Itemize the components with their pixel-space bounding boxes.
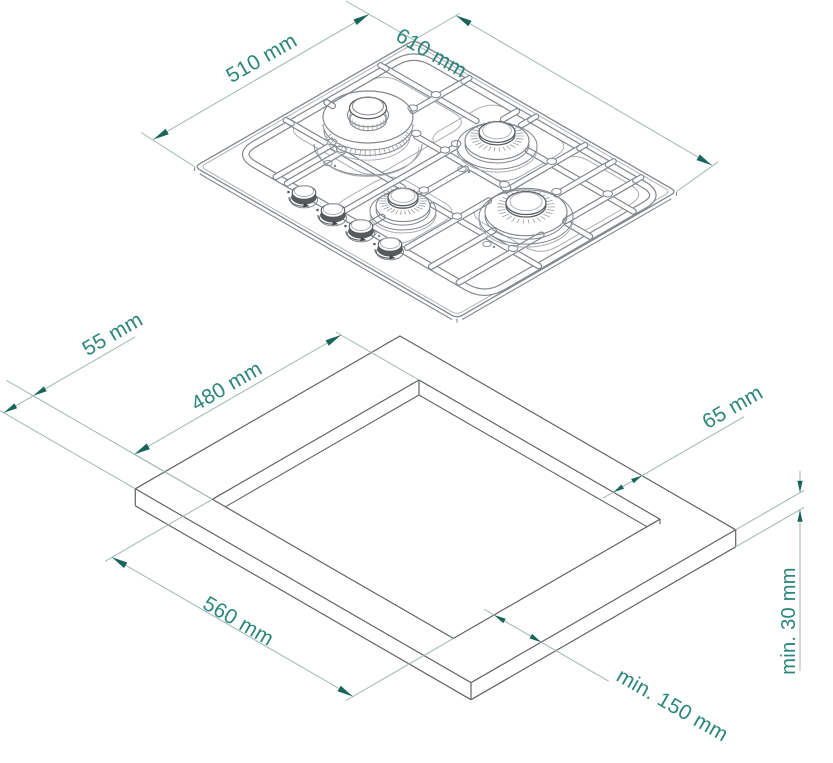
svg-text:65 mm: 65 mm (699, 381, 767, 434)
svg-text:55 mm: 55 mm (79, 308, 147, 361)
svg-text:560 mm: 560 mm (199, 592, 278, 651)
svg-text:480 mm: 480 mm (187, 357, 266, 416)
svg-text:min. 30 mm: min. 30 mm (778, 567, 800, 674)
svg-text:min. 150 mm: min. 150 mm (613, 664, 732, 746)
svg-text:510 mm: 510 mm (222, 29, 301, 88)
